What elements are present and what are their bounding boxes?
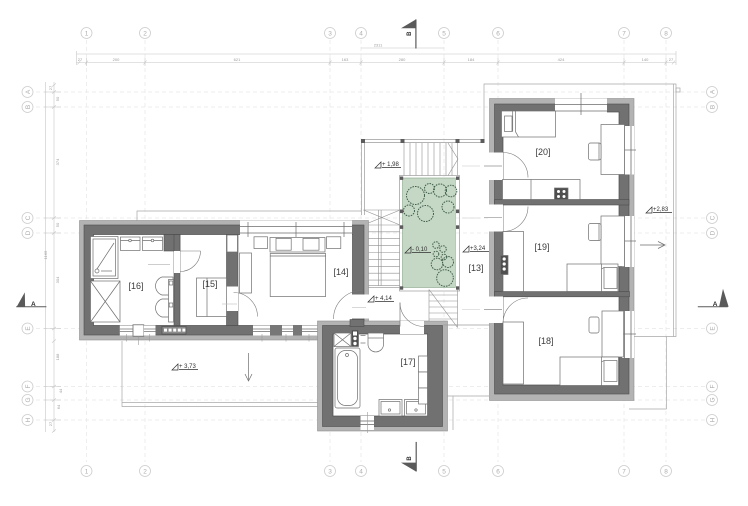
svg-text:1165: 1165 <box>43 250 48 259</box>
svg-text:[15]: [15] <box>202 279 217 289</box>
svg-text:27: 27 <box>669 57 674 62</box>
svg-text:A: A <box>713 301 718 308</box>
svg-text:280: 280 <box>399 57 406 62</box>
svg-text:+3,24: +3,24 <box>470 246 486 252</box>
svg-text:B: B <box>407 456 413 461</box>
svg-text:H: H <box>709 417 716 422</box>
svg-text:1: 1 <box>85 469 89 476</box>
svg-text:[20]: [20] <box>535 147 550 157</box>
svg-text:[19]: [19] <box>534 242 549 252</box>
svg-text:H: H <box>25 417 32 422</box>
svg-text:2: 2 <box>143 31 147 38</box>
svg-text:64: 64 <box>56 404 61 409</box>
svg-text:+ 3,73: + 3,73 <box>179 364 197 370</box>
svg-text:4: 4 <box>359 469 363 476</box>
svg-text:6: 6 <box>496 31 500 38</box>
svg-text:D: D <box>25 230 32 235</box>
svg-text:[17]: [17] <box>400 357 415 367</box>
svg-text:+2,83: +2,83 <box>653 207 669 213</box>
svg-text:3: 3 <box>328 31 332 38</box>
svg-text:+ 1,98: + 1,98 <box>382 162 400 168</box>
svg-text:1: 1 <box>85 31 89 38</box>
svg-text:E: E <box>25 326 32 331</box>
svg-text:188: 188 <box>55 353 60 360</box>
svg-text:304: 304 <box>55 276 60 283</box>
svg-text:7: 7 <box>622 469 626 476</box>
svg-text:8: 8 <box>664 469 668 476</box>
svg-text:B: B <box>25 105 32 109</box>
svg-text:2: 2 <box>143 469 147 476</box>
svg-text:8: 8 <box>664 31 668 38</box>
svg-text:A: A <box>709 89 716 94</box>
svg-text:F: F <box>25 384 32 388</box>
svg-text:621: 621 <box>234 57 241 62</box>
svg-text:[18]: [18] <box>538 336 553 346</box>
svg-text:- 0,10: - 0,10 <box>412 247 428 253</box>
svg-text:140: 140 <box>642 57 649 62</box>
svg-text:F: F <box>709 384 716 388</box>
svg-text:2311: 2311 <box>374 43 383 48</box>
svg-text:C: C <box>709 215 716 220</box>
svg-text:A: A <box>25 89 32 94</box>
svg-text:27: 27 <box>48 421 53 426</box>
svg-text:3: 3 <box>328 469 332 476</box>
svg-text:374: 374 <box>55 158 60 165</box>
svg-text:184: 184 <box>468 57 475 62</box>
svg-text:27: 27 <box>48 85 53 90</box>
svg-text:7: 7 <box>622 31 626 38</box>
svg-text:E: E <box>709 326 716 331</box>
svg-text:4: 4 <box>359 31 363 38</box>
svg-text:C: C <box>25 215 32 220</box>
svg-text:G: G <box>25 397 32 402</box>
svg-text:27: 27 <box>78 57 83 62</box>
svg-text:[13]: [13] <box>468 263 483 273</box>
svg-text:44: 44 <box>58 388 63 393</box>
svg-text:[16]: [16] <box>128 281 143 291</box>
svg-text:50: 50 <box>55 96 60 101</box>
svg-text:[14]: [14] <box>333 267 348 277</box>
svg-text:+ 4,14: + 4,14 <box>375 296 393 302</box>
svg-text:163: 163 <box>342 57 349 62</box>
svg-text:5: 5 <box>442 31 446 38</box>
svg-text:5: 5 <box>442 469 446 476</box>
svg-text:50: 50 <box>55 222 60 227</box>
svg-text:A: A <box>31 301 36 308</box>
svg-text:B: B <box>709 105 716 109</box>
svg-text:6: 6 <box>496 469 500 476</box>
svg-text:424: 424 <box>558 57 565 62</box>
svg-text:D: D <box>709 230 716 235</box>
svg-text:200: 200 <box>113 57 120 62</box>
svg-text:B: B <box>407 31 413 36</box>
svg-text:G: G <box>709 397 716 402</box>
